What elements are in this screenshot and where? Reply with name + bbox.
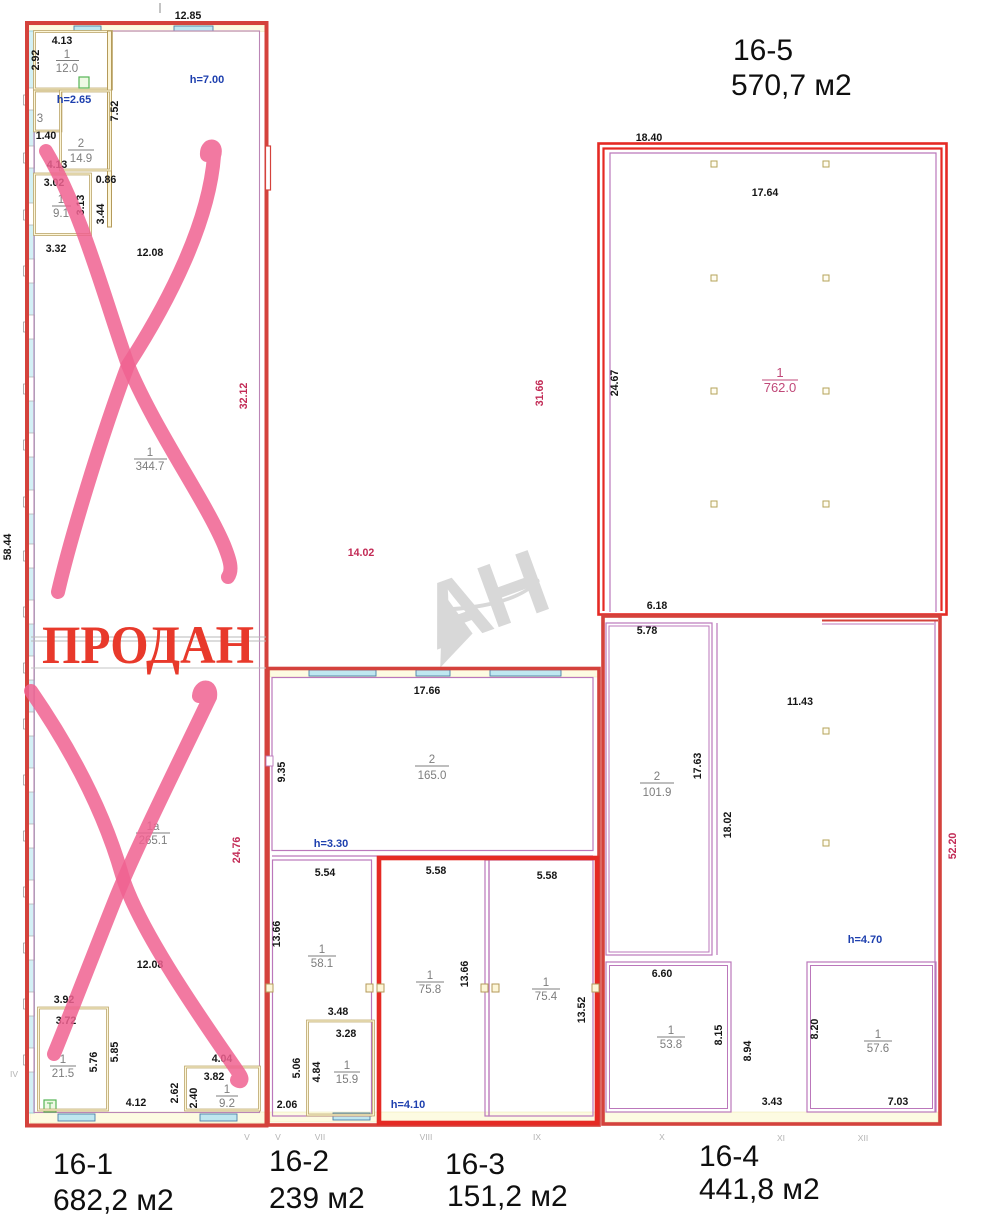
- svg-text:13.66: 13.66: [271, 921, 283, 948]
- svg-text:4.12: 4.12: [126, 1097, 147, 1109]
- svg-text:5.58: 5.58: [426, 865, 447, 877]
- svg-text:32.12: 32.12: [238, 383, 250, 410]
- svg-text:75.8: 75.8: [419, 984, 441, 996]
- svg-text:9.1: 9.1: [53, 208, 69, 220]
- svg-text:12.85: 12.85: [175, 10, 202, 22]
- svg-text:1: 1: [776, 365, 783, 380]
- svg-text:5.54: 5.54: [315, 867, 336, 879]
- svg-text:X: X: [659, 1132, 665, 1142]
- svg-text:1: 1: [543, 977, 549, 989]
- svg-text:3.43: 3.43: [762, 1096, 783, 1108]
- svg-text:1.40: 1.40: [36, 130, 57, 142]
- svg-text:1: 1: [224, 1084, 230, 1096]
- svg-text:18.02: 18.02: [722, 812, 734, 839]
- svg-text:V: V: [244, 1132, 250, 1142]
- svg-text:1: 1: [344, 1060, 350, 1072]
- svg-text:3.48: 3.48: [328, 1006, 349, 1018]
- svg-text:16-2: 16-2: [269, 1145, 329, 1178]
- svg-text:5.58: 5.58: [537, 870, 558, 882]
- svg-text:15.9: 15.9: [336, 1074, 358, 1086]
- svg-text:4.84: 4.84: [311, 1062, 323, 1083]
- svg-text:3.32: 3.32: [46, 243, 67, 255]
- svg-text:441,8 м2: 441,8 м2: [699, 1173, 820, 1206]
- svg-text:53.8: 53.8: [660, 1039, 682, 1051]
- svg-text:IV: IV: [10, 1069, 18, 1079]
- svg-text:IX: IX: [533, 1132, 541, 1142]
- svg-text:58.1: 58.1: [311, 958, 333, 970]
- svg-text:5.06: 5.06: [291, 1058, 303, 1079]
- svg-text:5.78: 5.78: [637, 625, 658, 637]
- svg-text:8.20: 8.20: [809, 1019, 821, 1040]
- svg-text:570,7 м2: 570,7 м2: [731, 69, 852, 102]
- svg-text:XI: XI: [777, 1133, 785, 1143]
- svg-text:h=3.30: h=3.30: [314, 838, 349, 850]
- svg-text:75.4: 75.4: [535, 991, 558, 1003]
- svg-text:165.0: 165.0: [418, 770, 447, 782]
- svg-text:101.9: 101.9: [643, 787, 672, 799]
- svg-text:h=4.70: h=4.70: [848, 934, 883, 946]
- svg-text:4.13: 4.13: [52, 35, 73, 47]
- svg-text:17.64: 17.64: [752, 187, 779, 199]
- svg-text:2.06: 2.06: [277, 1099, 298, 1111]
- svg-text:11.43: 11.43: [787, 696, 813, 708]
- svg-text:239 м2: 239 м2: [269, 1182, 365, 1215]
- svg-text:17.66: 17.66: [414, 685, 441, 697]
- svg-text:9.35: 9.35: [276, 762, 288, 783]
- svg-text:7.03: 7.03: [888, 1096, 909, 1108]
- svg-text:V: V: [275, 1132, 281, 1142]
- svg-text:2.62: 2.62: [169, 1083, 181, 1104]
- svg-text:16-1: 16-1: [53, 1148, 113, 1181]
- svg-text:2: 2: [429, 754, 435, 766]
- svg-text:3: 3: [37, 113, 43, 125]
- svg-text:1: 1: [147, 447, 153, 459]
- svg-text:5.76: 5.76: [88, 1052, 100, 1073]
- svg-text:344.7: 344.7: [136, 461, 165, 473]
- svg-text:58.44: 58.44: [2, 534, 14, 561]
- svg-text:5.85: 5.85: [109, 1042, 121, 1063]
- svg-text:1: 1: [319, 944, 325, 956]
- svg-text:2.40: 2.40: [188, 1088, 200, 1109]
- svg-text:57.6: 57.6: [867, 1043, 889, 1055]
- svg-text:12.08: 12.08: [137, 247, 164, 259]
- svg-text:14.9: 14.9: [70, 153, 92, 165]
- svg-text:3.28: 3.28: [336, 1028, 357, 1040]
- svg-text:6.60: 6.60: [652, 968, 673, 980]
- svg-text:2: 2: [78, 138, 84, 150]
- svg-text:1: 1: [668, 1025, 674, 1037]
- svg-text:h=7.00: h=7.00: [190, 74, 225, 86]
- svg-text:21.5: 21.5: [52, 1068, 74, 1080]
- svg-text:2.92: 2.92: [30, 50, 42, 71]
- svg-text:682,2 м2: 682,2 м2: [53, 1184, 174, 1217]
- svg-text:16-4: 16-4: [699, 1140, 759, 1173]
- svg-text:XII: XII: [858, 1133, 868, 1143]
- svg-text:1: 1: [427, 970, 433, 982]
- svg-text:14.02: 14.02: [348, 547, 375, 559]
- svg-text:9.2: 9.2: [219, 1098, 235, 1110]
- svg-text:1: 1: [64, 49, 70, 61]
- svg-text:3.44: 3.44: [95, 204, 107, 225]
- svg-text:16-5: 16-5: [733, 34, 793, 67]
- svg-text:31.66: 31.66: [534, 380, 546, 407]
- svg-text:3.82: 3.82: [204, 1071, 225, 1083]
- svg-text:12.0: 12.0: [56, 63, 78, 75]
- svg-text:h=2.65: h=2.65: [57, 94, 92, 106]
- svg-text:ПРОДАН: ПРОДАН: [42, 615, 254, 675]
- svg-text:VIII: VIII: [420, 1132, 433, 1142]
- svg-text:762.0: 762.0: [764, 380, 797, 395]
- svg-text:13.66: 13.66: [459, 961, 471, 988]
- svg-text:8.94: 8.94: [742, 1041, 754, 1062]
- svg-text:7.52: 7.52: [109, 101, 121, 122]
- svg-text:h=4.10: h=4.10: [391, 1099, 426, 1111]
- svg-text:24.67: 24.67: [609, 370, 621, 397]
- svg-text:6.18: 6.18: [647, 600, 668, 612]
- svg-text:151,2 м2: 151,2 м2: [447, 1180, 568, 1213]
- svg-text:24.76: 24.76: [231, 837, 243, 864]
- svg-text:8.15: 8.15: [713, 1025, 725, 1046]
- svg-text:1: 1: [875, 1029, 881, 1041]
- svg-text:17.63: 17.63: [692, 753, 704, 780]
- svg-text:2: 2: [654, 771, 660, 783]
- svg-text:18.40: 18.40: [636, 132, 663, 144]
- svg-text:52.20: 52.20: [947, 833, 959, 860]
- svg-text:0.86: 0.86: [96, 174, 117, 186]
- svg-text:13.52: 13.52: [576, 997, 588, 1024]
- svg-text:16-3: 16-3: [445, 1148, 505, 1181]
- svg-text:VII: VII: [315, 1132, 325, 1142]
